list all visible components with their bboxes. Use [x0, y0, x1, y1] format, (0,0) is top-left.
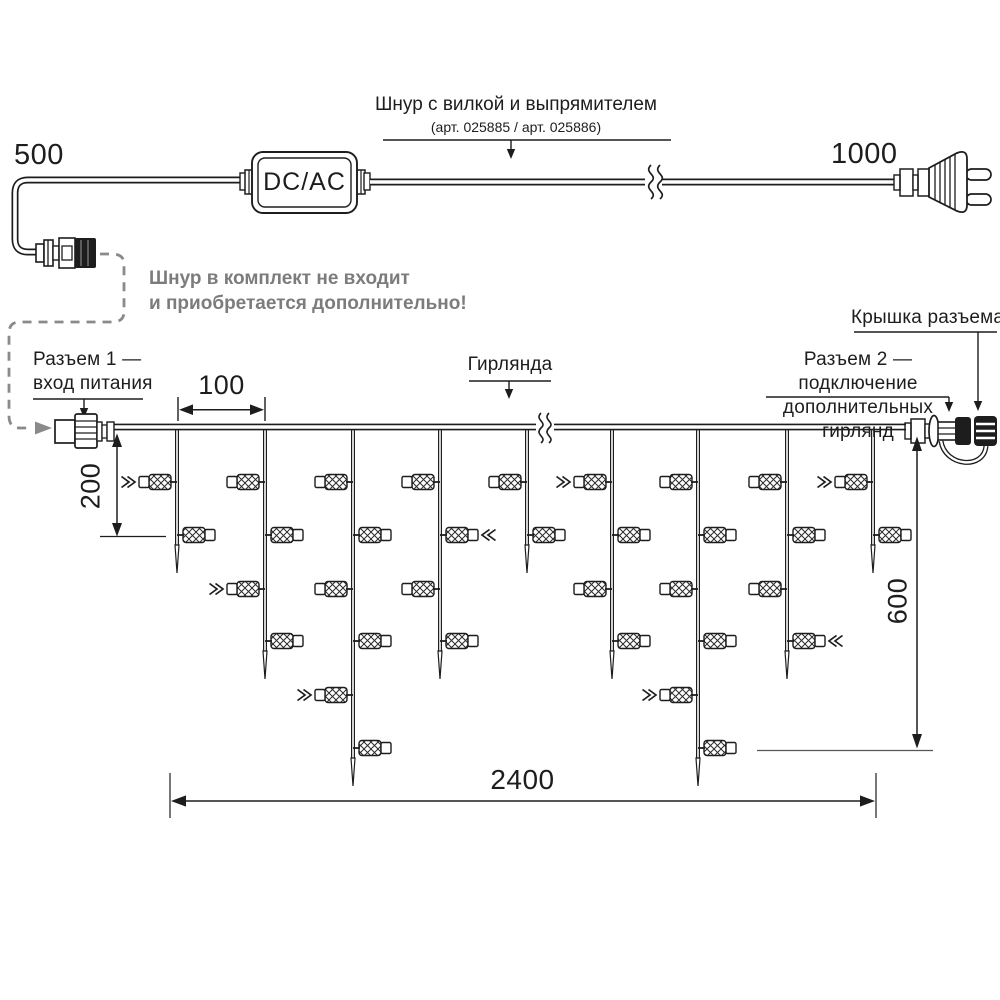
garland-drops — [122, 429, 912, 786]
bulb-direction-arrow-icon — [557, 477, 565, 488]
led-bulb — [873, 528, 911, 543]
bulb-direction-arrow-icon — [210, 584, 218, 595]
garland-drop — [749, 429, 843, 679]
garland-drop — [402, 429, 496, 679]
led-bulb — [698, 741, 736, 756]
led-bulb — [698, 528, 736, 543]
led-bulb — [787, 528, 825, 543]
spare-cord-connector — [36, 238, 96, 268]
garland-drop — [557, 429, 651, 679]
led-bulb — [489, 475, 527, 490]
dimension-200-label: 200 — [76, 463, 107, 510]
led-bulb — [353, 741, 391, 756]
led-bulb — [122, 475, 178, 490]
cord-subtitle: (арт. 025885 / арт. 025886) — [330, 119, 702, 135]
led-bulb — [527, 528, 565, 543]
led-bulb — [749, 582, 787, 597]
dcac-label: DC/AC — [252, 152, 357, 213]
bulb-direction-arrow-icon — [835, 636, 843, 647]
bulb-direction-arrow-icon — [488, 530, 496, 541]
led-bulb — [749, 475, 787, 490]
dimension-600-label: 600 — [883, 578, 914, 625]
led-bulb — [227, 475, 265, 490]
note-line1: Шнур в комплект не входит — [149, 266, 467, 291]
led-bulb — [698, 634, 736, 649]
led-bulb — [265, 634, 303, 649]
bulb-direction-arrow-icon — [818, 477, 826, 488]
diagram-page: 500 1000 DC/AC Шнур с вилкой и выпрямите… — [0, 0, 1000, 1000]
connector1 — [55, 414, 114, 448]
led-bulb — [440, 634, 478, 649]
led-bulb — [557, 475, 613, 490]
garland-drop — [643, 429, 737, 786]
garland-drop — [210, 429, 304, 679]
led-bulb — [660, 582, 698, 597]
not-included-note: Шнур в комплект не входит и приобретаетс… — [149, 266, 467, 316]
led-bulb — [315, 475, 353, 490]
dimension-100-label: 100 — [178, 370, 265, 401]
bulb-direction-arrow-icon — [122, 477, 130, 488]
led-bulb — [402, 475, 440, 490]
dimension-2400-label: 2400 — [455, 764, 590, 796]
garland-label: Гирлянда — [450, 354, 570, 376]
led-bulb — [210, 582, 266, 597]
cord-length-left-label: 500 — [14, 139, 64, 172]
garland-drop — [122, 429, 216, 573]
bulb-direction-arrow-icon — [643, 690, 651, 701]
led-bulb — [643, 688, 699, 703]
not-included-dashed-path — [9, 254, 124, 435]
led-bulb — [298, 688, 354, 703]
connector1-label-line2: вход питания — [33, 372, 153, 396]
cord-title: Шнур с вилкой и выпрямителем — [330, 94, 702, 116]
connector1-label-line1: Разъем 1 — — [33, 348, 153, 372]
led-bulb — [787, 634, 843, 649]
led-bulb — [177, 528, 215, 543]
led-bulb — [353, 528, 391, 543]
garland-drop — [489, 429, 565, 573]
dashed-arrowhead-icon — [35, 422, 52, 435]
note-line2: и приобретается дополнительно! — [149, 291, 467, 316]
led-bulb — [315, 582, 353, 597]
led-bulb — [612, 634, 650, 649]
led-bulb — [612, 528, 650, 543]
bulb-direction-arrow-icon — [298, 690, 306, 701]
led-bulb — [818, 475, 874, 490]
connector2-label-line2: дополнительных гирлянд — [752, 396, 964, 444]
connector1-label: Разъем 1 — вход питания — [33, 348, 153, 396]
connector-cap-label: Крышка разъема — [851, 307, 997, 329]
power-plug — [894, 150, 991, 215]
connector2-label-line1: Разъем 2 — подключение — [752, 348, 964, 396]
led-bulb — [353, 634, 391, 649]
led-bulb — [440, 528, 496, 543]
garland-leader — [469, 381, 551, 399]
connector2-label: Разъем 2 — подключение дополнительных ги… — [752, 348, 964, 444]
led-bulb — [660, 475, 698, 490]
cord-length-right-label: 1000 — [831, 138, 898, 171]
garland-drop — [818, 429, 912, 573]
garland-drop — [298, 429, 392, 786]
cord-title-leader — [383, 140, 671, 159]
led-bulb — [574, 582, 612, 597]
power-cord-right-segment — [370, 165, 896, 199]
led-bulb — [402, 582, 440, 597]
led-bulb — [265, 528, 303, 543]
